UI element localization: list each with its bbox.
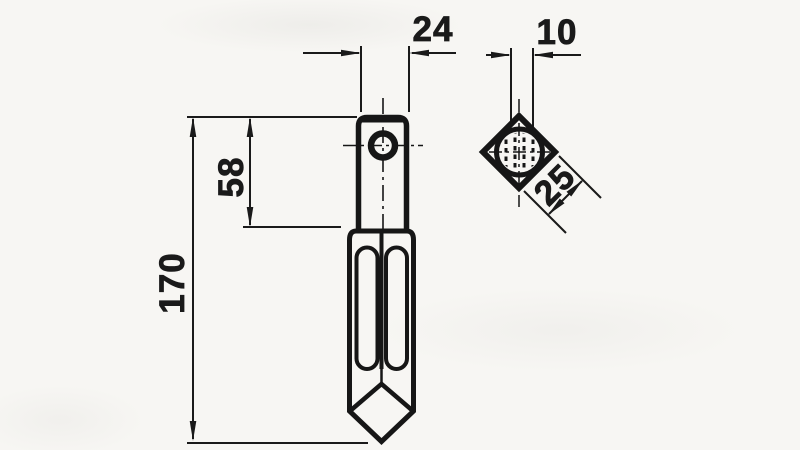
part-front-view	[343, 98, 423, 442]
dim-24-label: 24	[413, 10, 454, 49]
dim-10-label: 10	[537, 13, 578, 52]
technical-drawing-sheet: 24 10 58 170	[0, 0, 800, 450]
dimension-58: 58	[212, 117, 341, 227]
drawing-svg: 24 10 58 170	[0, 0, 800, 450]
dimension-24: 24	[303, 10, 456, 112]
dim-24-arrow-right	[409, 50, 429, 57]
blade-tip-chamfer	[350, 384, 413, 411]
dim-10-arrow-right	[533, 52, 553, 59]
dim-25-label: 25	[527, 157, 584, 214]
dimension-10: 10	[486, 13, 581, 130]
dimension-170: 170	[153, 117, 368, 443]
blade-right-slot	[386, 248, 407, 370]
dim-170-label: 170	[153, 252, 192, 313]
dim-170-arrow-top	[190, 117, 197, 137]
dim-10-arrow-left	[491, 52, 511, 59]
blade-left-slot	[357, 248, 378, 370]
dim-24-arrow-left	[341, 50, 361, 57]
dim-58-arrow-bottom	[247, 207, 254, 227]
dim-170-arrow-bottom	[190, 421, 197, 441]
dim-58-label: 58	[212, 157, 251, 198]
dim-58-arrow-top	[247, 117, 254, 137]
